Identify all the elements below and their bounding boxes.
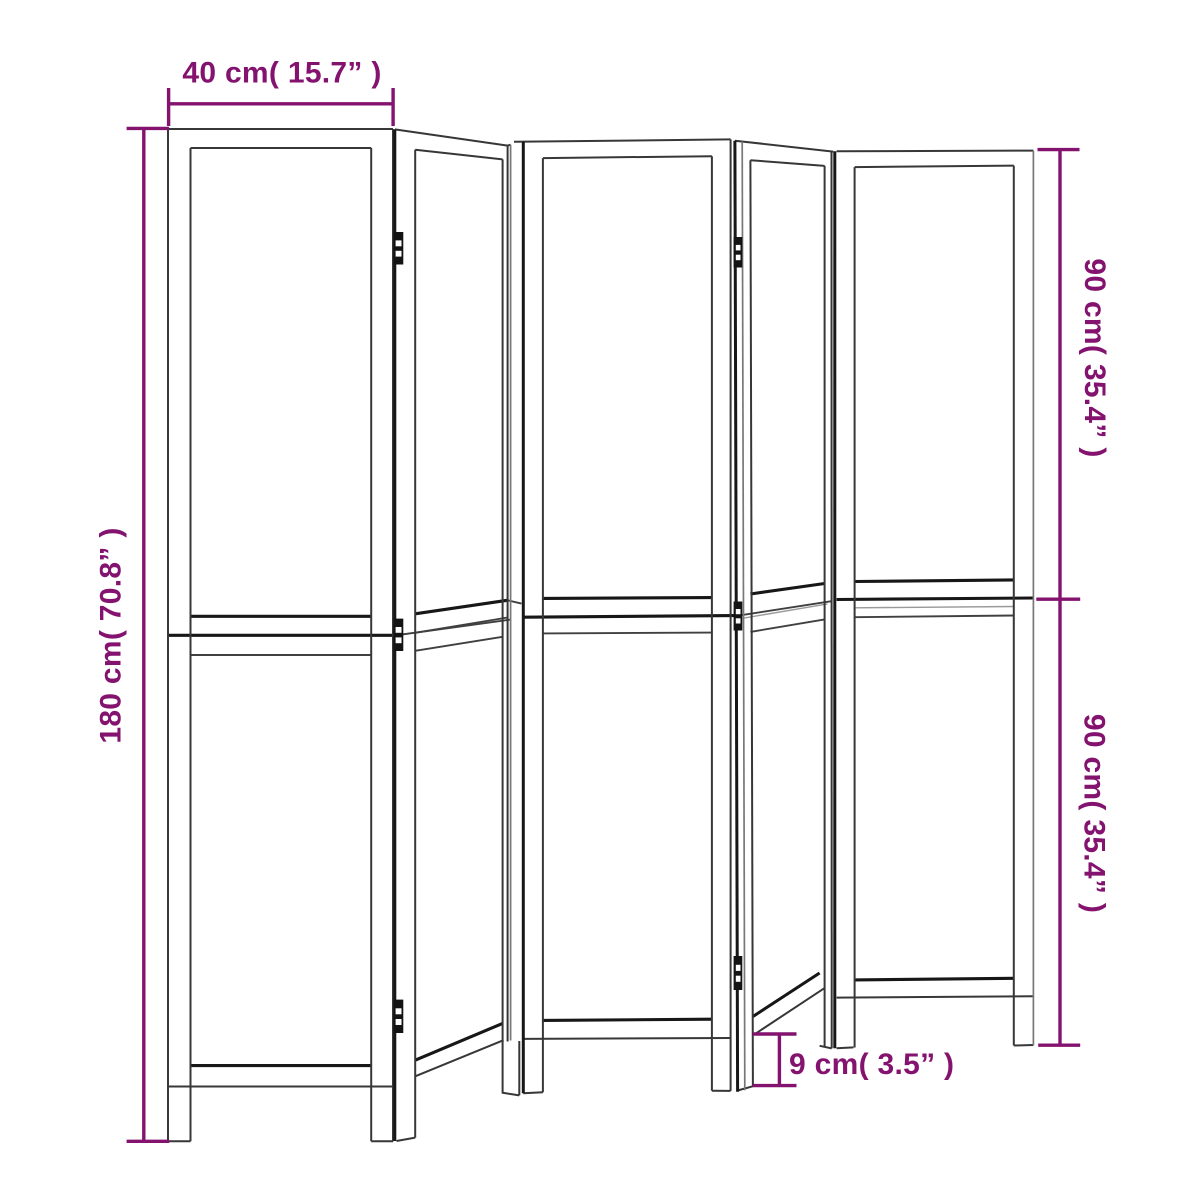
svg-text:40 cm( 15.7” ): 40 cm( 15.7” ) <box>182 57 381 90</box>
svg-text:90 cm( 35.4” ): 90 cm( 35.4” ) <box>1078 714 1111 913</box>
svg-text:9 cm( 3.5” ): 9 cm( 3.5” ) <box>789 1048 954 1081</box>
svg-text:90 cm( 35.4” ): 90 cm( 35.4” ) <box>1078 258 1111 457</box>
svg-text:180 cm( 70.8” ): 180 cm( 70.8” ) <box>95 527 128 743</box>
